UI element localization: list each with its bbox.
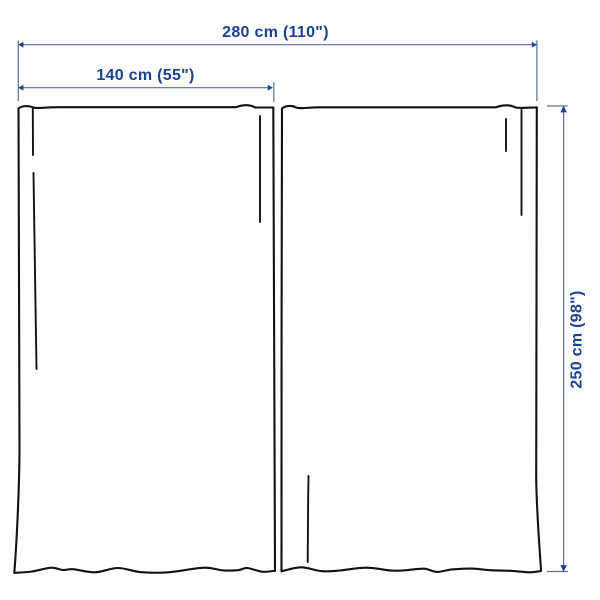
svg-text:140 cm (55"): 140 cm (55") — [96, 67, 194, 84]
svg-text:250 cm (98"): 250 cm (98") — [569, 290, 586, 388]
svg-text:280 cm (110"): 280 cm (110") — [222, 24, 329, 41]
